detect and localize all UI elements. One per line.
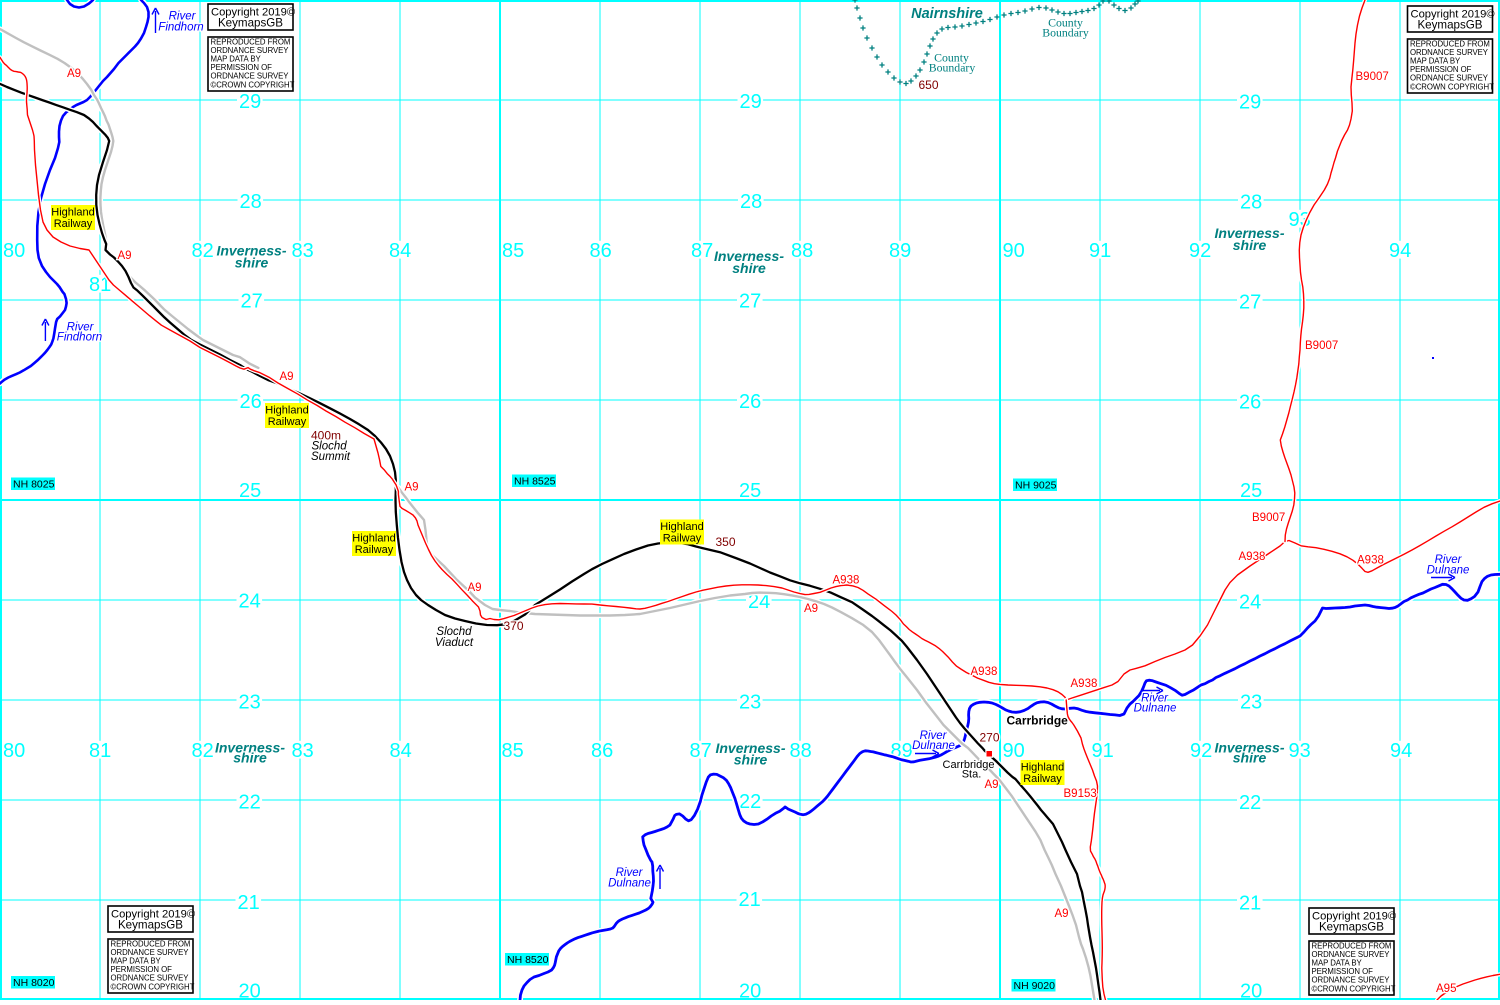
svg-text:Carrbridge: Carrbridge (1007, 714, 1069, 728)
svg-text:22: 22 (739, 791, 761, 813)
svg-text:shire: shire (732, 260, 766, 276)
svg-text:28: 28 (1240, 192, 1262, 214)
svg-text:87: 87 (690, 740, 712, 762)
svg-text:22: 22 (239, 792, 261, 814)
svg-text:23: 23 (239, 692, 261, 714)
svg-text:Railway: Railway (54, 218, 93, 230)
svg-text:27: 27 (1239, 292, 1261, 314)
svg-text:27: 27 (739, 291, 761, 313)
svg-text:A9: A9 (280, 371, 294, 383)
svg-text:94: 94 (1389, 240, 1411, 262)
svg-text:89: 89 (889, 240, 911, 262)
svg-text:A95: A95 (1436, 983, 1456, 995)
svg-text:©CROWN COPYRIGHT: ©CROWN COPYRIGHT (1410, 82, 1494, 91)
svg-text:A938: A938 (833, 575, 860, 587)
svg-text:29: 29 (1239, 92, 1261, 114)
svg-text:88: 88 (791, 240, 813, 262)
svg-text:84: 84 (389, 240, 411, 262)
svg-text:shire: shire (1233, 237, 1267, 253)
svg-text:Sta.: Sta. (962, 769, 982, 781)
svg-text:93: 93 (1289, 740, 1311, 762)
svg-text:A938: A938 (1239, 551, 1266, 563)
svg-text:29: 29 (239, 91, 261, 113)
svg-text:20: 20 (1240, 981, 1262, 1001)
svg-text:shire: shire (233, 750, 267, 766)
svg-text:Viaduct: Viaduct (435, 637, 474, 649)
svg-text:27: 27 (241, 291, 263, 313)
svg-text:Summit: Summit (311, 451, 351, 463)
svg-text:A9: A9 (67, 68, 81, 80)
svg-text:A9: A9 (405, 482, 419, 494)
svg-text:B9007: B9007 (1356, 71, 1389, 83)
svg-text:KeymapsGB: KeymapsGB (218, 17, 283, 30)
svg-text:Railway: Railway (268, 416, 307, 428)
svg-text:83: 83 (292, 740, 314, 762)
svg-text:A9: A9 (468, 582, 482, 594)
svg-text:26: 26 (240, 391, 262, 413)
svg-text:28: 28 (740, 191, 762, 213)
svg-text:350: 350 (716, 535, 736, 549)
svg-text:Railway: Railway (663, 533, 702, 545)
svg-text:B9007: B9007 (1252, 512, 1285, 524)
svg-text:20: 20 (239, 981, 261, 1001)
svg-text:KeymapsGB: KeymapsGB (1319, 921, 1384, 934)
svg-text:NH 8525: NH 8525 (514, 476, 556, 488)
svg-text:KeymapsGB: KeymapsGB (1417, 19, 1482, 32)
svg-text:21: 21 (1239, 893, 1261, 915)
svg-text:88: 88 (790, 740, 812, 762)
svg-text:25: 25 (1240, 480, 1262, 502)
svg-text:shire: shire (235, 255, 269, 271)
svg-text:NH 9020: NH 9020 (1014, 980, 1056, 992)
svg-text:21: 21 (238, 892, 260, 914)
svg-text:90: 90 (1003, 740, 1025, 762)
svg-text:85: 85 (502, 240, 524, 262)
svg-text:shire: shire (734, 752, 768, 768)
svg-text:26: 26 (739, 391, 761, 413)
svg-text:87: 87 (691, 240, 713, 262)
svg-text:NH 8025: NH 8025 (13, 479, 55, 491)
svg-text:B9007: B9007 (1305, 340, 1338, 352)
svg-text:80: 80 (3, 740, 25, 762)
svg-text:92: 92 (1190, 740, 1212, 762)
svg-text:A9: A9 (118, 250, 132, 262)
svg-text:23: 23 (739, 692, 761, 714)
svg-text:80: 80 (3, 240, 25, 262)
svg-text:NH 8020: NH 8020 (13, 977, 55, 989)
svg-text:82: 82 (192, 740, 214, 762)
svg-text:shire: shire (1233, 750, 1267, 766)
svg-text:86: 86 (590, 240, 612, 262)
svg-text:24: 24 (239, 591, 261, 613)
svg-text:24: 24 (1239, 592, 1261, 614)
svg-text:90: 90 (1003, 240, 1025, 262)
svg-text:25: 25 (739, 480, 761, 502)
svg-text:NH 9025: NH 9025 (1015, 480, 1057, 492)
svg-text:270: 270 (980, 731, 1000, 745)
svg-text:Findhorn: Findhorn (158, 22, 203, 34)
svg-text:A938: A938 (1357, 555, 1384, 567)
svg-text:A938: A938 (971, 666, 998, 678)
svg-text:Railway: Railway (355, 544, 394, 556)
svg-text:A9: A9 (985, 779, 999, 791)
svg-text:83: 83 (292, 240, 314, 262)
svg-text:20: 20 (739, 981, 761, 1001)
svg-text:22: 22 (1239, 792, 1261, 814)
svg-text:©CROWN COPYRIGHT: ©CROWN COPYRIGHT (111, 982, 195, 991)
svg-text:370: 370 (504, 619, 524, 633)
svg-text:Dulnane: Dulnane (1427, 565, 1470, 577)
svg-text:29: 29 (740, 91, 762, 113)
svg-text:©CROWN COPYRIGHT: ©CROWN COPYRIGHT (211, 80, 295, 89)
svg-text:Highland: Highland (51, 207, 94, 219)
svg-text:KeymapsGB: KeymapsGB (118, 919, 183, 932)
svg-text:Boundary: Boundary (1042, 26, 1089, 40)
svg-text:86: 86 (591, 740, 613, 762)
svg-text:26: 26 (1239, 392, 1261, 414)
svg-text:94: 94 (1390, 740, 1412, 762)
svg-text:91: 91 (1092, 740, 1114, 762)
svg-text:Boundary: Boundary (929, 61, 976, 75)
svg-text:Nairnshire: Nairnshire (911, 6, 983, 22)
svg-text:650: 650 (919, 78, 939, 92)
svg-text:Highland: Highland (1021, 762, 1064, 774)
svg-text:Highland: Highland (352, 533, 395, 545)
svg-text:Findhorn: Findhorn (57, 332, 102, 344)
svg-text:82: 82 (192, 240, 214, 262)
svg-text:A938: A938 (1071, 678, 1098, 690)
svg-text:Highland: Highland (265, 405, 308, 417)
svg-text:81: 81 (89, 740, 111, 762)
svg-text:85: 85 (502, 740, 524, 762)
svg-text:A9: A9 (804, 603, 818, 615)
svg-text:91: 91 (1089, 240, 1111, 262)
svg-text:©CROWN COPYRIGHT: ©CROWN COPYRIGHT (1312, 984, 1396, 993)
svg-text:21: 21 (739, 889, 761, 911)
svg-text:NH 8520: NH 8520 (507, 954, 549, 966)
svg-text:B9153: B9153 (1064, 788, 1097, 800)
svg-text:23: 23 (1240, 692, 1262, 714)
svg-text:28: 28 (240, 191, 262, 213)
svg-text:Highland: Highland (660, 521, 703, 533)
svg-text:Dulnane: Dulnane (608, 878, 651, 890)
svg-text:Railway: Railway (1023, 773, 1062, 785)
svg-text:92: 92 (1189, 240, 1211, 262)
svg-text:Dulnane: Dulnane (1134, 703, 1177, 715)
svg-text:25: 25 (239, 480, 261, 502)
svg-text:84: 84 (390, 740, 412, 762)
svg-text:A9: A9 (1055, 908, 1069, 920)
